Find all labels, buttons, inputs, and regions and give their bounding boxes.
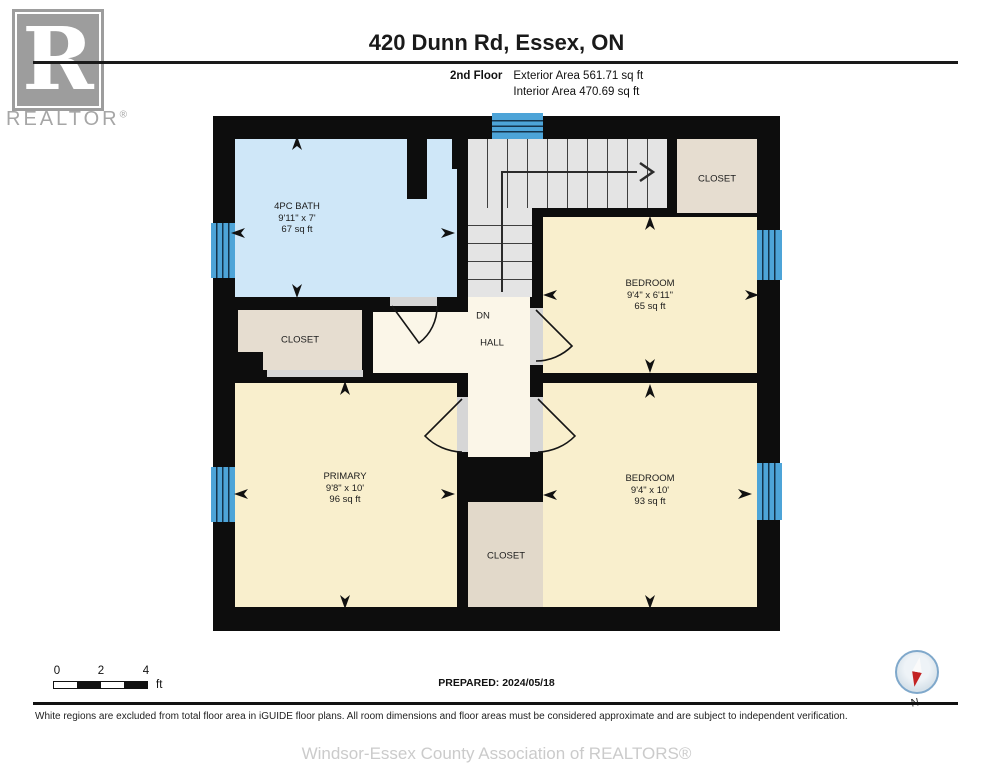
exterior-area: Exterior Area 561.71 sq ft: [513, 70, 643, 82]
floor-summary: 2nd Floor Exterior Area 561.71 sq ft Int…: [450, 70, 643, 102]
dimension-arrow: [745, 290, 759, 300]
room-label-closet-center: CLOSET: [487, 550, 525, 562]
floor-plan: 4PC BATH 9'11" x 7' 67 sq ft CLOSET BEDR…: [213, 116, 780, 631]
dimension-arrow: [441, 489, 455, 499]
room-label-bedroom-bottom: BEDROOM 9'4" x 10' 93 sq ft: [625, 473, 674, 508]
scale-tick-2: 2: [98, 665, 104, 677]
stairs-dn-label: DN: [476, 310, 490, 322]
room-label-closet-left: CLOSET: [281, 334, 319, 346]
door-arc-bath: [392, 306, 437, 343]
dimension-arrow: [543, 290, 557, 300]
dimension-arrow: [292, 136, 302, 150]
realtor-logo: R: [12, 9, 104, 111]
area-values: Exterior Area 561.71 sq ft Interior Area…: [513, 70, 643, 102]
dimension-arrow: [234, 489, 248, 499]
floor-label: 2nd Floor: [450, 70, 502, 102]
door-arc-bedroom-top: [536, 310, 572, 361]
room-label-bedroom-top: BEDROOM 9'4" x 6'11" 65 sq ft: [625, 278, 674, 313]
dimension-arrow: [645, 384, 655, 398]
logo-brand-text: REALTOR®: [6, 108, 130, 131]
dimension-arrow: [441, 228, 455, 238]
dimension-arrow: [645, 595, 655, 609]
dimension-arrow: [292, 284, 302, 298]
watermark: Windsor-Essex County Association of REAL…: [0, 744, 993, 764]
dimension-arrow: [645, 216, 655, 230]
dimension-arrow: [543, 490, 557, 500]
room-label-bath: 4PC BATH 9'11" x 7' 67 sq ft: [274, 201, 320, 236]
compass-needle: [908, 656, 926, 688]
compass-icon: [895, 650, 939, 694]
dimension-arrow: [340, 595, 350, 609]
page-title: 420 Dunn Rd, Essex, ON: [0, 30, 993, 56]
prepared-date: PREPARED: 2024/05/18: [0, 677, 993, 689]
room-label-closet-top-right: CLOSET: [698, 173, 736, 185]
scale-tick-4: 4: [143, 665, 149, 677]
footer-rule: [33, 702, 958, 705]
dimension-arrow: [645, 359, 655, 373]
dimension-arrow: [738, 489, 752, 499]
room-label-hall: HALL: [480, 337, 504, 349]
disclaimer-text: White regions are excluded from total fl…: [35, 711, 965, 722]
door-arc-primary: [425, 399, 462, 452]
registered-mark: ®: [120, 109, 130, 120]
title-rule: [33, 61, 958, 64]
door-arc-bedroom-bottom: [538, 399, 575, 452]
stair-direction-line: [502, 172, 637, 292]
dimension-arrow: [340, 381, 350, 395]
floorplan-page: R REALTOR® 420 Dunn Rd, Essex, ON 2nd Fl…: [0, 0, 993, 768]
room-label-primary: PRIMARY 9'8" x 10' 96 sq ft: [323, 471, 366, 506]
interior-area: Interior Area 470.69 sq ft: [513, 86, 643, 98]
stair-direction-arrow-icon: [640, 163, 653, 181]
dimension-arrow: [231, 228, 245, 238]
scale-tick-0: 0: [54, 665, 60, 677]
